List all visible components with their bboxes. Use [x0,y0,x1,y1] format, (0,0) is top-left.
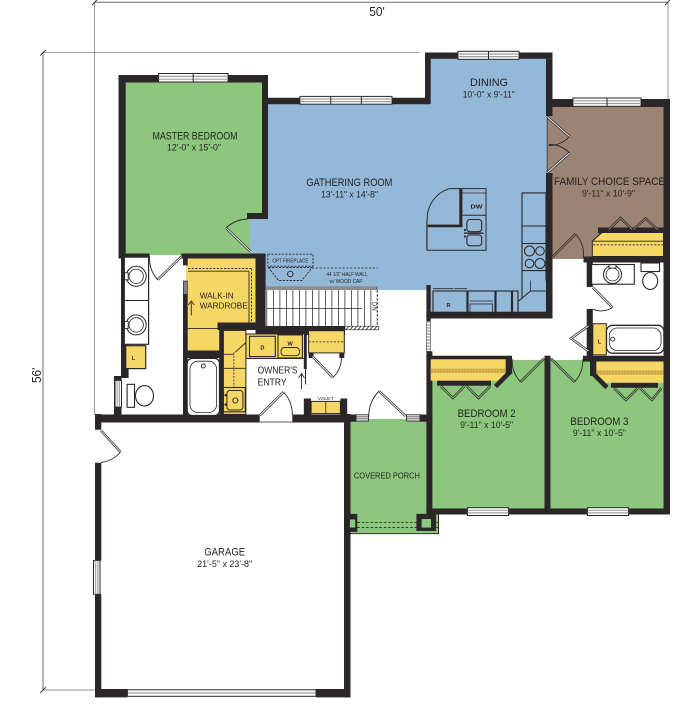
svg-text:9'-11" x 10'-9": 9'-11" x 10'-9" [582,188,635,198]
svg-text:DW: DW [471,205,484,211]
svg-text:9'-11" x 10'-5": 9'-11" x 10'-5" [573,428,626,438]
svg-text:10'-0" x 9'-11": 10'-0" x 9'-11" [463,90,515,100]
svg-text:DINING: DINING [470,77,508,89]
svg-text:DN: DN [371,302,377,311]
svg-text:13'-11" x 14'-8": 13'-11" x 14'-8" [321,189,378,199]
svg-text:ENTRY: ENTRY [258,377,287,388]
svg-text:VALET: VALET [318,396,334,402]
svg-text:W: W [288,342,294,348]
svg-text:L: L [598,340,602,346]
svg-text:OWNER'S: OWNER'S [258,365,298,376]
svg-text:GARAGE: GARAGE [204,547,245,559]
svg-text:BEDROOM 2: BEDROOM 2 [458,408,516,420]
svg-text:BEDROOM 3: BEDROOM 3 [570,416,628,428]
svg-text:GATHERING ROOM: GATHERING ROOM [306,177,392,189]
svg-text:12'-0" x 15'-0": 12'-0" x 15'-0" [167,143,221,153]
svg-text:FAMILY CHOICE SPACE: FAMILY CHOICE SPACE [554,176,665,188]
svg-text:56': 56' [30,368,44,384]
svg-text:COVERED PORCH: COVERED PORCH [354,471,420,481]
svg-text:50': 50' [369,5,385,19]
svg-text:MASTER BEDROOM: MASTER BEDROOM [153,131,238,143]
svg-text:WALK-IN: WALK-IN [200,291,234,301]
svg-text:9'-11" x 10'-5": 9'-11" x 10'-5" [460,420,513,430]
svg-text:OPT FIREPLACE: OPT FIREPLACE [272,259,309,265]
svg-text:D: D [260,346,264,352]
svg-text:WARDROBE: WARDROBE [200,301,248,311]
svg-text:w/ WOOD CAP: w/ WOOD CAP [329,279,363,285]
svg-text:L: L [132,356,136,362]
svg-text:R: R [446,303,450,309]
svg-text:44 1/2" HALF WALL: 44 1/2" HALF WALL [327,272,368,278]
svg-text:21'-5" x 23'-8": 21'-5" x 23'-8" [197,559,252,569]
